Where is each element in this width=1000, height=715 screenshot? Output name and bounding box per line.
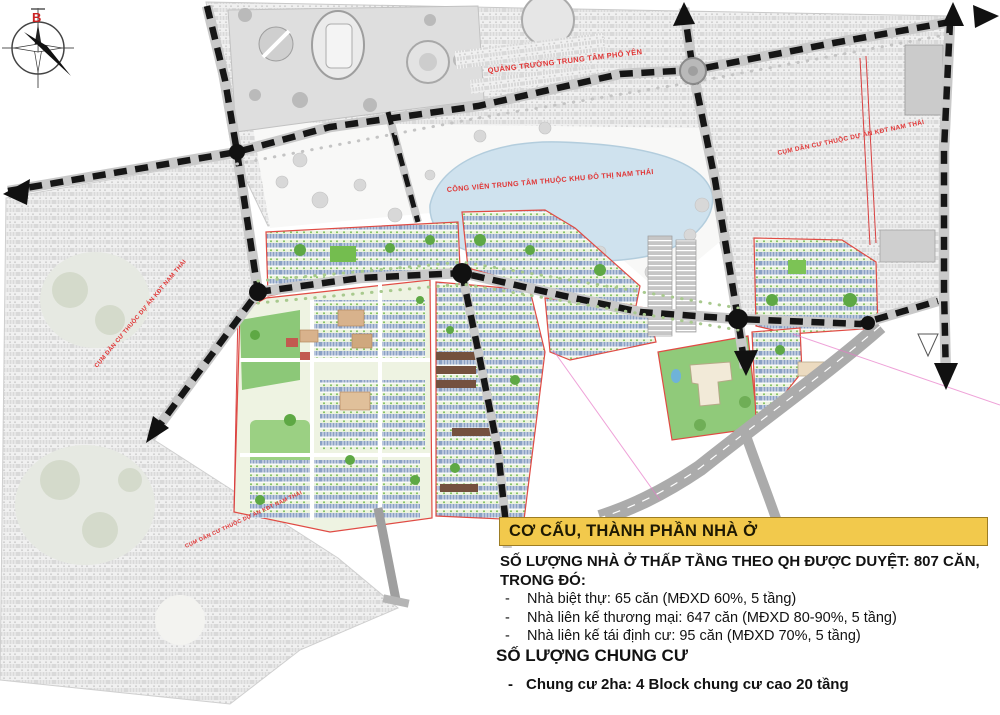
development-area xyxy=(234,210,878,532)
bullet-dash: - xyxy=(505,610,527,626)
housing-block-sw xyxy=(234,280,432,532)
compass-north-label: B xyxy=(32,10,41,25)
arrow-outline-icon xyxy=(918,334,938,356)
bullet-dash: - xyxy=(505,628,527,644)
low-rise-heading-line1: SỐ LƯỢNG NHÀ Ở THẤP TẦNG THEO QH ĐƯỢC DU… xyxy=(500,553,980,570)
low-rise-item-2: -Nhà liên kế thương mại: 647 căn (MĐXD 8… xyxy=(505,610,897,626)
low-rise-item-3-text: Nhà liên kế tái định cư: 95 căn (MĐXD 70… xyxy=(527,628,861,644)
master-plan-screenshot: QUẢNG TRƯỜNG TRUNG TÂM PHỔ YÊN CÔNG VIÊN… xyxy=(0,0,1000,715)
low-rise-item-1: -Nhà biệt thự: 65 căn (MĐXD 60%, 5 tầng) xyxy=(505,591,796,607)
compass-rose-icon: B xyxy=(2,8,74,88)
bullet-dash: - xyxy=(508,676,526,693)
arrow-north-east-icon xyxy=(942,2,964,26)
panel-title-banner: CƠ CẤU, THÀNH PHẦN NHÀ Ở xyxy=(499,517,988,546)
apartment-item-1-text: Chung cư 2ha: 4 Block chung cư cao 20 tầ… xyxy=(526,676,849,693)
low-rise-heading-line2: TRONG ĐÓ: xyxy=(500,572,586,589)
low-rise-item-3: -Nhà liên kế tái định cư: 95 căn (MĐXD 7… xyxy=(505,628,861,644)
arrow-south-east-icon xyxy=(934,363,958,390)
low-rise-item-1-text: Nhà biệt thự: 65 căn (MĐXD 60%, 5 tầng) xyxy=(527,591,796,607)
apartment-item-1: -Chung cư 2ha: 4 Block chung cư cao 20 t… xyxy=(508,676,849,693)
roundabout xyxy=(680,58,706,84)
panel-title: CƠ CẤU, THÀNH PHẦN NHÀ Ở xyxy=(509,522,757,540)
bullet-dash: - xyxy=(505,591,527,607)
low-rise-item-2-text: Nhà liên kế thương mại: 647 căn (MĐXD 80… xyxy=(527,610,897,626)
apartment-heading: SỐ LƯỢNG CHUNG CƯ xyxy=(496,646,688,666)
arrow-east-icon xyxy=(973,5,999,28)
